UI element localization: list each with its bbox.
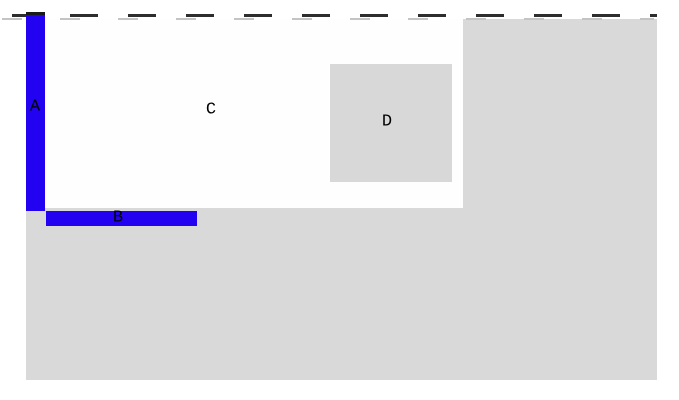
figure-canvas: A B C D [0, 0, 679, 400]
label-b: B [113, 210, 123, 227]
top-dashed-line-light [2, 18, 654, 20]
label-d: D [382, 114, 392, 131]
label-c: C [206, 102, 216, 119]
label-a: A [30, 99, 40, 116]
top-dashed-line-dark [12, 14, 657, 17]
